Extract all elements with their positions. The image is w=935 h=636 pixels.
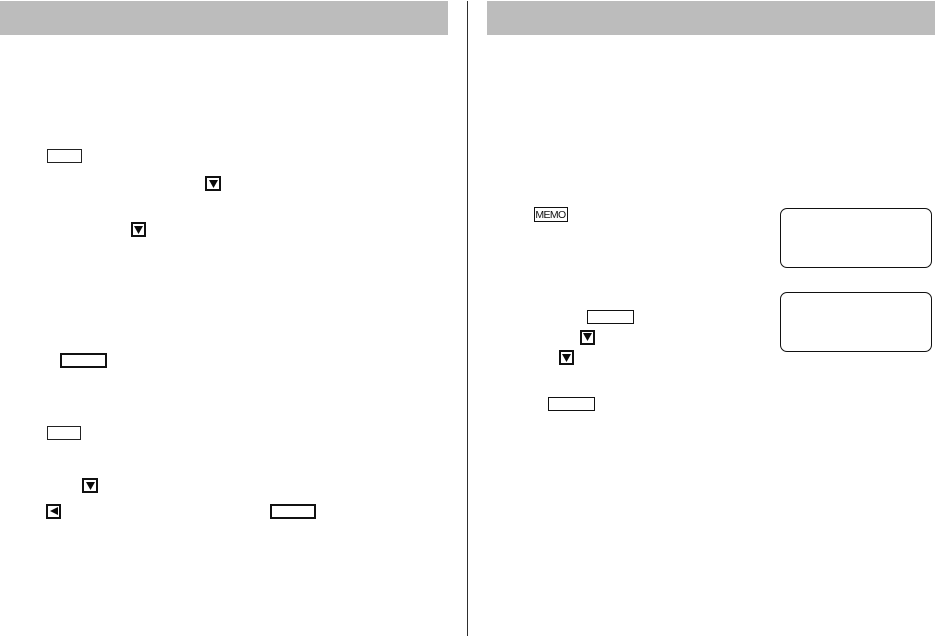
svg-text:MEMO: MEMO [536, 209, 567, 220]
